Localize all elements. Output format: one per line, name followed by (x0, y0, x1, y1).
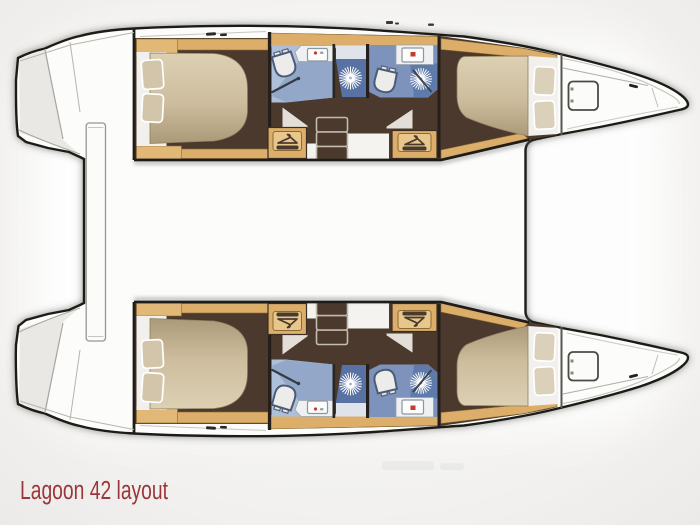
svg-text:Lagoon 42 layout: Lagoon 42 layout (20, 477, 168, 505)
